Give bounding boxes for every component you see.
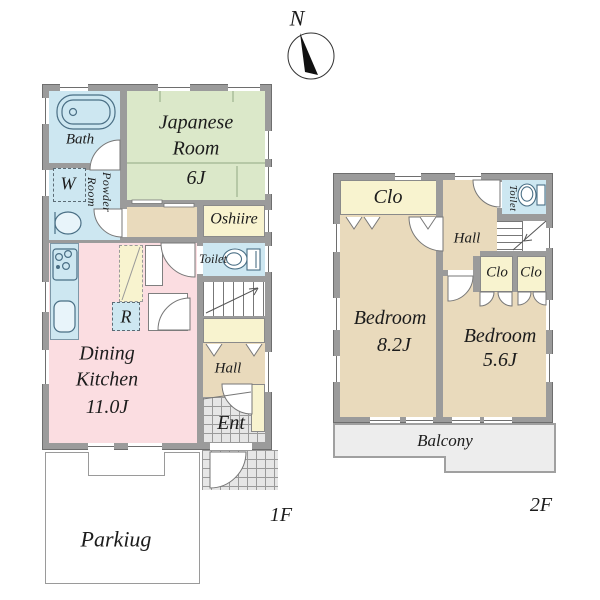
window	[333, 224, 340, 252]
compass-icon	[288, 33, 334, 79]
window	[60, 84, 88, 91]
wall	[436, 251, 443, 417]
window	[42, 282, 49, 312]
balcony-door	[370, 417, 400, 424]
label-closet-right: Clo	[520, 263, 542, 283]
wall	[513, 256, 517, 292]
label-balcony: Balcony	[417, 430, 473, 452]
window	[265, 131, 272, 159]
label-closet-main: Clo	[374, 184, 403, 210]
label-dining-kitchen-size: 11.0J	[86, 394, 128, 420]
label-floor-2f: 2F	[530, 492, 552, 518]
window	[333, 356, 340, 382]
label-bedroom-small-size: 5.6J	[483, 347, 517, 373]
label-parking: Parkiug	[81, 526, 152, 555]
balcony-door	[406, 417, 433, 424]
label-japanese-room: Japanese Room	[144, 110, 249, 161]
label-bedroom-large-size: 8.2J	[377, 332, 411, 358]
label-japanese-room-size: 6J	[187, 165, 206, 191]
label-entrance: Ent	[217, 410, 245, 436]
window	[42, 98, 49, 124]
window	[42, 350, 49, 384]
label-bath: Bath	[66, 130, 94, 150]
wall	[497, 214, 546, 221]
balcony-door	[484, 417, 512, 424]
window	[333, 298, 340, 330]
label-refrigerator: R	[121, 305, 132, 328]
window	[158, 84, 190, 91]
label-closet-left: Clo	[486, 263, 508, 283]
shoe-cabinet	[251, 384, 265, 432]
window	[265, 210, 272, 232]
kitchen-cupboard	[145, 245, 163, 286]
window	[42, 170, 49, 196]
wall	[473, 256, 480, 292]
entrance-porch	[202, 450, 278, 490]
window	[546, 300, 553, 330]
window	[265, 246, 272, 272]
stairs-1f	[203, 282, 265, 316]
balcony-door	[452, 417, 480, 424]
storage-closet-1f	[148, 293, 188, 331]
label-toilet-1f: Toilet	[199, 251, 227, 267]
door-opening	[120, 209, 127, 237]
corridor-1f	[127, 207, 197, 237]
stairs-2f-treads	[497, 221, 523, 251]
floor-plan-canvas: N Bath W Powder Room Japanese Room 6J Os…	[0, 0, 600, 600]
label-powder-room: Powder Room	[84, 163, 114, 221]
compass-north-label: N	[290, 5, 305, 34]
window	[455, 173, 481, 180]
door-opening	[448, 270, 473, 276]
label-hall-2f: Hall	[454, 229, 481, 249]
label-oshiire: Oshiire	[210, 210, 257, 231]
room-bath	[49, 91, 120, 163]
window	[88, 443, 114, 450]
kitchen-counter	[50, 243, 79, 340]
window	[128, 443, 162, 450]
window	[265, 167, 272, 194]
door-opening	[436, 217, 443, 251]
window	[395, 173, 421, 180]
label-bedroom-large: Bedroom	[354, 305, 427, 331]
label-hall-1f: Hall	[215, 359, 242, 379]
wall	[436, 180, 443, 217]
window	[546, 228, 553, 248]
label-floor-1f: 1F	[270, 502, 292, 528]
label-toilet-2f: Toilet	[502, 181, 518, 215]
label-bedroom-small: Bedroom	[464, 323, 537, 349]
hall-closet-1f	[203, 318, 265, 343]
window	[228, 84, 260, 91]
parking-step	[88, 452, 165, 476]
kitchen-cabinet-counter	[119, 245, 143, 302]
window	[265, 352, 272, 392]
front-door-opening	[210, 443, 252, 450]
window	[546, 354, 553, 382]
label-washer: W	[61, 172, 76, 195]
label-dining-kitchen: Dining Kitchen	[55, 341, 160, 392]
